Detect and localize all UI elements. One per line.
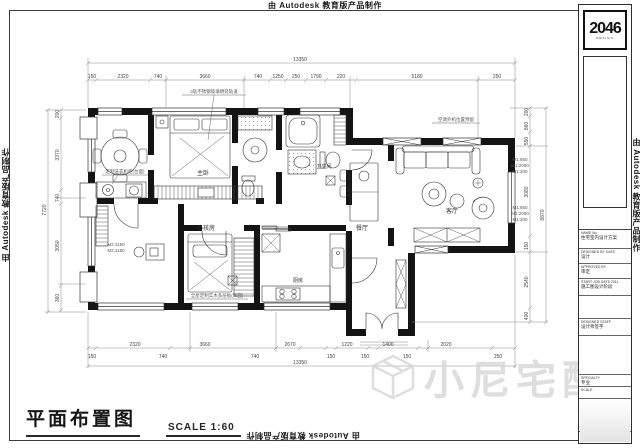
dim-bottom-r2-1: 740 bbox=[159, 354, 168, 360]
room-label-kids-room: 小孩房 bbox=[197, 224, 215, 232]
room-label-living-room: 客厅 bbox=[446, 207, 458, 215]
door-mark-a1: M1:650 bbox=[512, 157, 528, 162]
drawing-scale: SCALE 1:60 bbox=[166, 422, 241, 437]
title-block: 2046 DESIGN NAME No. 住宅室内设计方案 DESIGNED B… bbox=[578, 4, 632, 444]
master-wardrobe bbox=[154, 186, 262, 199]
dim-right-2: 550 bbox=[524, 137, 530, 146]
laundry-counter bbox=[96, 182, 146, 198]
drawing-sheet: 由 Autodesk 教育版产品制作 由 Autodesk 教育版产品制作 由 … bbox=[0, 0, 640, 448]
dim-left-overall: 7720 bbox=[42, 204, 48, 215]
dim-top-0: 150 bbox=[88, 74, 97, 80]
room-label-dining-area: 餐厅 bbox=[356, 224, 368, 232]
field-staff-value: 设计师签字 bbox=[581, 324, 629, 330]
dimension-lines bbox=[45, 58, 548, 368]
title-block-empty-panel bbox=[583, 56, 627, 208]
tv-cabinet bbox=[414, 228, 480, 242]
door-mark-c2: M2:1190 bbox=[107, 248, 125, 253]
dim-bottom-r2-6: 250 bbox=[494, 354, 503, 360]
dim-top-7: 1790 bbox=[310, 74, 321, 80]
field-start-date-value: 施工图设计阶段 bbox=[581, 284, 629, 290]
dim-right-1: 860 bbox=[524, 122, 530, 131]
dim-bottom-r2-3: 150 bbox=[327, 354, 336, 360]
field-designed-by: DESIGNED BY DATE 设计 bbox=[579, 249, 631, 264]
dim-right-0: 200 bbox=[524, 108, 530, 117]
door-mark-b1: M1:650 bbox=[512, 205, 528, 210]
door-mark-a2: M1:2000 bbox=[511, 163, 529, 168]
dim-bottom-r1-3: 1220 bbox=[341, 342, 352, 348]
dim-left-0: 200 bbox=[55, 110, 61, 119]
dim-left-3: 3050 bbox=[55, 240, 61, 251]
dim-top-overall: 13350 bbox=[293, 57, 307, 63]
door-mark-b2: M1:2000 bbox=[511, 211, 529, 216]
drawing-title-bar: 平面布置图 SCALE 1:60 bbox=[26, 404, 241, 437]
room-label-master-bedroom: 主卧 bbox=[197, 169, 209, 177]
dim-bottom-r1-2: 2670 bbox=[284, 342, 295, 348]
shoe-cabinet bbox=[396, 260, 406, 308]
lounge-chair bbox=[472, 197, 494, 219]
dressing-cabinet bbox=[238, 116, 272, 196]
door-mark-a3: M1:200 bbox=[512, 169, 528, 174]
dim-left-2: 740 bbox=[55, 194, 61, 203]
dim-bottom-r1-0: 2320 bbox=[129, 342, 140, 348]
dim-left-1: 3370 bbox=[55, 149, 61, 160]
field-scale: SCALE bbox=[579, 387, 631, 399]
logo-subtext: DESIGN bbox=[596, 36, 614, 40]
dim-bottom-r2-4: 150 bbox=[361, 354, 370, 360]
kids-bed bbox=[188, 234, 232, 292]
field-staff: DESIGNED STAFF 设计师签字 bbox=[579, 319, 631, 336]
dim-bottom-r2-2: 740 bbox=[251, 354, 260, 360]
field-spacer-2 bbox=[579, 336, 631, 375]
dim-right-5: 2540 bbox=[524, 276, 530, 287]
stove bbox=[276, 288, 300, 300]
bathtub bbox=[286, 115, 320, 147]
coffee-table bbox=[422, 178, 483, 208]
dim-bottom-r1-1: 3660 bbox=[199, 342, 210, 348]
field-spacer-1 bbox=[579, 296, 631, 319]
title-block-logo: 2046 DESIGN bbox=[583, 10, 627, 50]
dining-table bbox=[340, 163, 378, 221]
dim-right-overall: 8870 bbox=[540, 209, 546, 220]
dim-top-1: 2320 bbox=[117, 74, 128, 80]
field-designed-by-value: 设计 bbox=[581, 254, 629, 260]
dim-bottom-overall: 13350 bbox=[293, 360, 307, 366]
field-approved-by-value: 审定 bbox=[581, 269, 629, 275]
title-block-smudge bbox=[580, 400, 630, 442]
washbasin bbox=[288, 150, 316, 174]
field-start-date: START JOB DATE 2011 施工图设计阶段 bbox=[579, 279, 631, 296]
field-name-value: 住宅室内设计方案 bbox=[581, 235, 629, 241]
dim-top-5: 1250 bbox=[272, 74, 283, 80]
dim-left-4: 360 bbox=[55, 294, 61, 303]
bath-tall-cabinet bbox=[334, 115, 346, 145]
door-mark-c1: M2:1150 bbox=[107, 242, 125, 247]
sofa bbox=[396, 146, 480, 174]
annotation-ac-note: 空调外机位置预留 bbox=[438, 116, 474, 123]
dim-top-10: 250 bbox=[493, 74, 502, 80]
dim-top-6: 250 bbox=[292, 74, 301, 80]
annotation-laundry-note: 定制洗衣机柜(台面) bbox=[106, 168, 145, 175]
field-scale-label: SCALE bbox=[581, 388, 629, 392]
dim-bottom-r1-5: 2020 bbox=[440, 342, 451, 348]
kids-wardrobe bbox=[234, 238, 254, 296]
kitchen-counter bbox=[262, 234, 346, 302]
doors-layer bbox=[114, 150, 408, 345]
dining-round-table bbox=[93, 130, 147, 182]
dim-right-6: 400 bbox=[524, 312, 530, 321]
logo-text: 2046 bbox=[589, 21, 621, 36]
door-mark-b3: M1:200 bbox=[512, 217, 528, 222]
room-label-kitchen: 厨房 bbox=[293, 277, 303, 284]
field-name: NAME No. 住宅室内设计方案 bbox=[579, 230, 631, 249]
dim-bottom-r2-5: 150 bbox=[403, 354, 412, 360]
dim-top-2: 740 bbox=[154, 74, 163, 80]
room-label-bathroom: 卫生间 bbox=[316, 163, 331, 170]
dim-top-9: 5180 bbox=[411, 74, 422, 80]
dim-right-4: 150 bbox=[524, 242, 530, 251]
dim-right-3: 3080 bbox=[524, 186, 530, 197]
dim-top-4: 740 bbox=[254, 74, 263, 80]
dim-bottom-r2-0: 150 bbox=[88, 354, 97, 360]
annotation-partition-note: 3轨不锈钢玻璃明装轨道 bbox=[190, 88, 238, 95]
field-specialty-value: 专业 bbox=[581, 380, 629, 386]
dim-top-3: 3660 bbox=[199, 74, 210, 80]
dim-bottom-r1-4: 1400 bbox=[382, 342, 393, 348]
drawing-title: 平面布置图 bbox=[26, 404, 140, 437]
field-approved-by: APPROVED BY 审定 bbox=[579, 264, 631, 279]
floor-plan-svg: 13350 150 2320 740 3660 740 1250 250 179… bbox=[0, 0, 640, 448]
study-desk bbox=[96, 206, 164, 260]
dim-top-8: 220 bbox=[337, 74, 346, 80]
field-specialty: SPECIALTY 专业 bbox=[579, 375, 631, 387]
master-bed bbox=[156, 116, 230, 178]
annotation-closet-note: 全屋定制实木多层板(饰面) bbox=[191, 292, 244, 299]
